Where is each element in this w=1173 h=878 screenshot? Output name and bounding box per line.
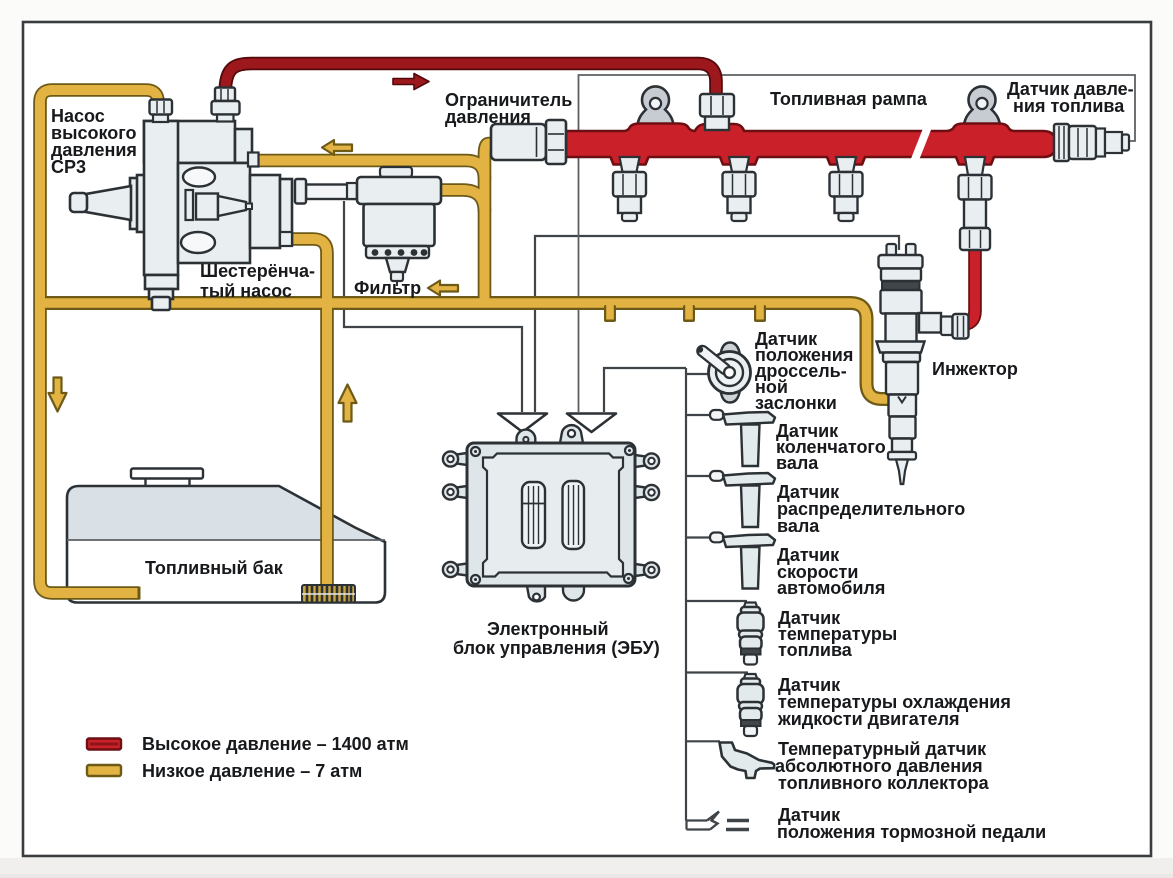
svg-text:Инжектор: Инжектор — [932, 359, 1018, 379]
svg-text:давления: давления — [445, 107, 531, 127]
svg-text:Низкое давление – 7 атм: Низкое давление – 7 атм — [142, 761, 362, 781]
svg-text:Топливная рампа: Топливная рампа — [770, 89, 928, 109]
svg-text:жидкости двигателя: жидкости двигателя — [777, 709, 960, 729]
svg-text:блок управления (ЭБУ): блок управления (ЭБУ) — [453, 638, 660, 658]
svg-text:Высокое давление – 1400 атм: Высокое давление – 1400 атм — [142, 734, 409, 754]
svg-text:Шестерёнча-: Шестерёнча- — [200, 261, 315, 281]
svg-text:автомобиля: автомобиля — [777, 578, 885, 598]
svg-text:Топливный бак: Топливный бак — [145, 558, 284, 578]
svg-text:Электронный: Электронный — [487, 619, 609, 639]
svg-text:вала: вала — [776, 453, 819, 473]
svg-text:тый насос: тый насос — [200, 281, 292, 301]
svg-text:СР3: СР3 — [51, 157, 86, 177]
svg-text:заслонки: заслонки — [755, 393, 837, 413]
svg-text:топлива: топлива — [778, 640, 853, 660]
svg-text:топливного коллектора: топливного коллектора — [778, 773, 990, 793]
svg-text:Фильтр: Фильтр — [354, 278, 421, 298]
svg-text:положения тормозной педали: положения тормозной педали — [777, 822, 1046, 842]
svg-text:вала: вала — [777, 516, 820, 536]
svg-text:ния топлива: ния топлива — [1013, 96, 1125, 116]
